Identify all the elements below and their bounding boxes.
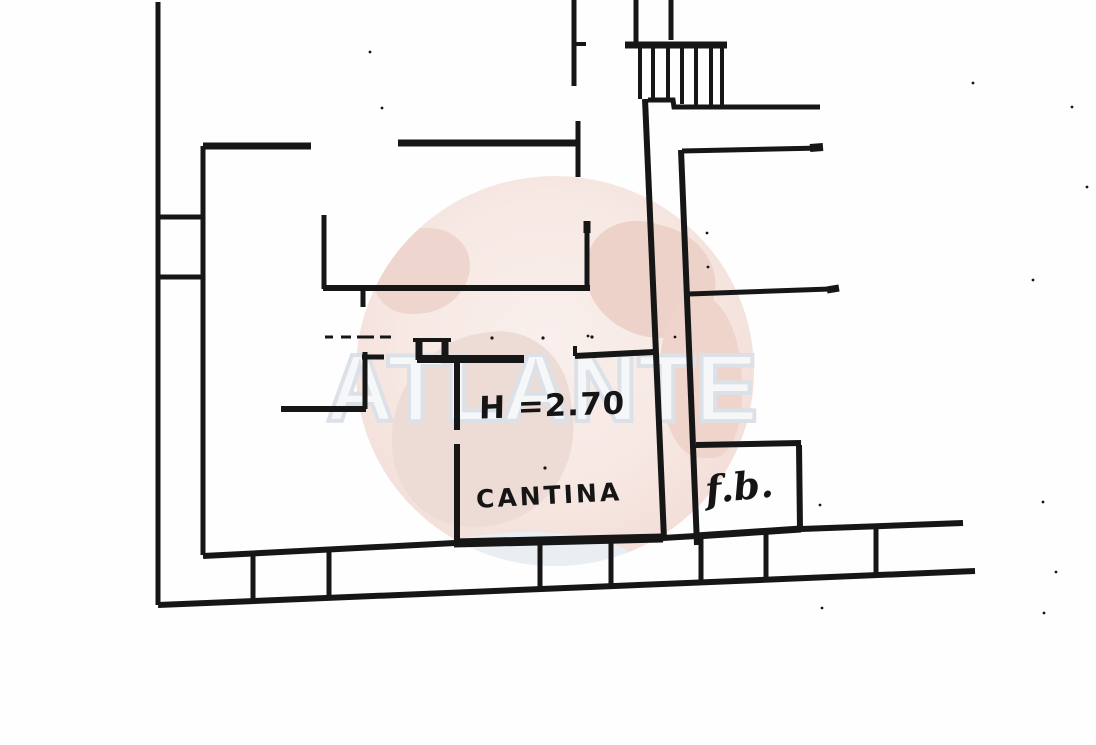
walls-right-horizontal [575,147,839,356]
wall-left-double [158,2,203,605]
staircase [625,0,820,107]
wall-l-shape-left-of-cantina [281,352,384,409]
floor-plan-page: ATLANTE [0,0,1096,745]
room-label-fb: f.b. [703,461,775,513]
ceiling-height-label: H =2.70 [479,385,626,426]
wall-bottom-double-with-ties [158,523,975,605]
room-upper-middle-walls [323,215,590,307]
floor-plan-drawing [0,0,1096,745]
wall-top-middle-with-door-jamb [398,0,586,177]
scan-specks [369,51,1089,615]
door-dashed-line [325,335,594,339]
room-cantina-walls [417,359,663,543]
wall-middle-vertical-double [645,99,697,545]
